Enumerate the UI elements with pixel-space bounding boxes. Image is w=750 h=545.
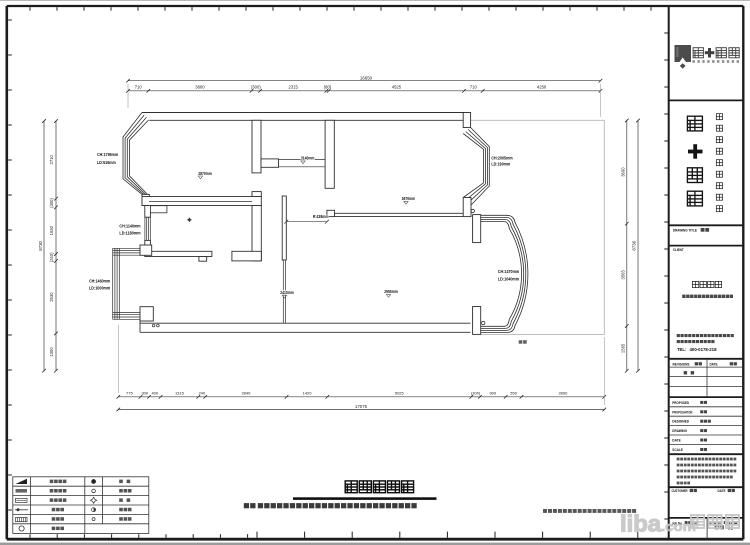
svg-text:2530: 2530 xyxy=(49,292,54,302)
svg-text:LD:516mm: LD:516mm xyxy=(97,160,116,166)
svg-text:(80): (80) xyxy=(324,85,332,90)
svg-text:900: 900 xyxy=(489,391,496,396)
svg-text:3670mm: 3670mm xyxy=(402,196,416,201)
svg-text:3600: 3600 xyxy=(620,167,625,177)
svg-text:1420: 1420 xyxy=(303,391,313,396)
svg-text:8730: 8730 xyxy=(632,240,637,250)
svg-text:2870mm: 2870mm xyxy=(198,171,212,176)
svg-text:4250: 4250 xyxy=(537,85,547,90)
svg-text:2840: 2840 xyxy=(241,391,251,396)
svg-text:DATE: DATE xyxy=(672,439,680,443)
svg-text:3565: 3565 xyxy=(620,269,625,279)
svg-text:(300): (300) xyxy=(49,198,54,208)
svg-text:R:438mm: R:438mm xyxy=(313,214,329,219)
svg-text:PROPOSATION: PROPOSATION xyxy=(672,410,693,414)
svg-text:(300): (300) xyxy=(251,85,261,90)
svg-text:PROPOSED: PROPOSED xyxy=(672,401,689,405)
svg-text:1315: 1315 xyxy=(175,391,185,396)
svg-text:(240): (240) xyxy=(49,252,54,262)
svg-text:4525: 4525 xyxy=(392,85,402,90)
svg-text:16650: 16650 xyxy=(360,75,373,80)
svg-text:2315: 2315 xyxy=(289,85,299,90)
svg-text:DRAWING: DRAWING xyxy=(672,429,687,433)
svg-text:1565: 1565 xyxy=(620,343,625,353)
svg-text:17075: 17075 xyxy=(355,404,368,409)
svg-text:LD:1040mm: LD:1040mm xyxy=(498,277,519,283)
svg-text:8730: 8730 xyxy=(38,240,43,250)
svg-text:400: 400 xyxy=(151,391,158,396)
svg-text:400-0178-218: 400-0178-218 xyxy=(690,347,718,352)
svg-text:550: 550 xyxy=(510,391,517,396)
svg-text:DATE: DATE xyxy=(710,362,719,366)
svg-text:2410mm: 2410mm xyxy=(280,290,294,295)
svg-text:2710: 2710 xyxy=(49,154,54,164)
svg-text:TEL:: TEL: xyxy=(677,347,686,352)
svg-text:CH:1460mm: CH:1460mm xyxy=(89,279,110,285)
svg-text:CH:2005mm: CH:2005mm xyxy=(491,156,512,161)
svg-text:240: 240 xyxy=(198,391,205,396)
svg-text:CH:1795mm: CH:1795mm xyxy=(97,152,118,158)
svg-text:DATE: DATE xyxy=(718,489,727,493)
svg-text:REVISIONS: REVISIONS xyxy=(673,362,691,366)
svg-text:3140mm: 3140mm xyxy=(301,156,315,161)
svg-text:CLIENT: CLIENT xyxy=(673,248,685,252)
svg-text:LD:190mm: LD:190mm xyxy=(491,161,510,166)
svg-text:SCALE: SCALE xyxy=(672,448,683,452)
svg-text:2955mm: 2955mm xyxy=(384,289,398,294)
svg-text:CH:1470mm: CH:1470mm xyxy=(498,269,519,275)
svg-text:300: 300 xyxy=(141,391,148,396)
svg-text:1630: 1630 xyxy=(49,225,54,235)
svg-text:5025: 5025 xyxy=(395,391,405,396)
svg-text:LD:1180mm: LD:1180mm xyxy=(119,230,140,236)
svg-text:DESIGNED: DESIGNED xyxy=(672,420,689,424)
svg-text:3600: 3600 xyxy=(195,85,205,90)
svg-text:CUSTOMER: CUSTOMER xyxy=(672,489,688,493)
svg-text:DRAWING TITLE: DRAWING TITLE xyxy=(673,228,697,233)
svg-text:710: 710 xyxy=(135,85,143,90)
svg-text:775: 775 xyxy=(126,391,133,396)
svg-text:710: 710 xyxy=(470,85,478,90)
svg-text:liba: liba xyxy=(620,511,661,537)
svg-text:(300): (300) xyxy=(471,391,481,396)
svg-text:LD:1000mm: LD:1000mm xyxy=(89,286,110,292)
svg-text:1300: 1300 xyxy=(49,347,54,357)
svg-text:CH:1140mm: CH:1140mm xyxy=(119,224,140,230)
svg-text:2890: 2890 xyxy=(558,391,568,396)
